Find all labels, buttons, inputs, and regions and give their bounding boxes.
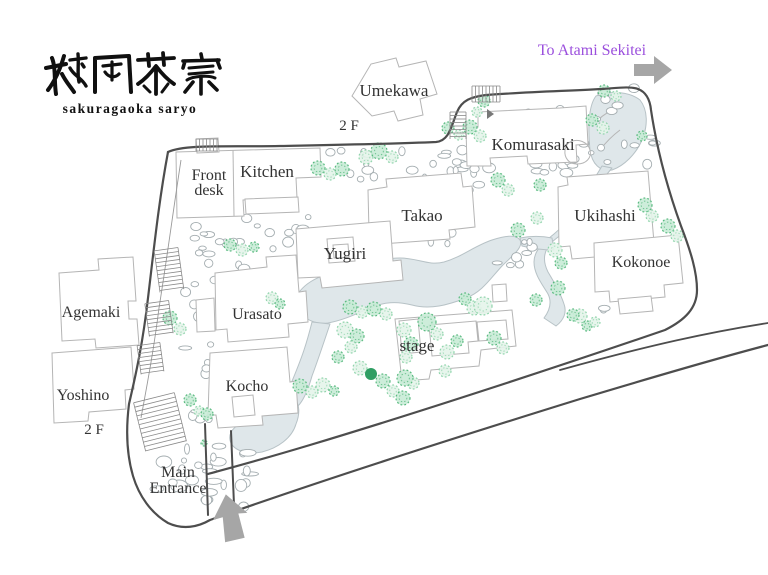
tree-symbol	[174, 323, 186, 335]
stone-symbol	[205, 259, 213, 267]
label-yoshino: Yoshino	[57, 387, 110, 404]
stone-symbol	[215, 239, 224, 245]
stone-symbol	[473, 181, 485, 188]
stone-symbol	[630, 143, 639, 148]
label-umekawa: Umekawa	[360, 81, 429, 100]
tree-symbol	[638, 198, 652, 212]
label-komurasaki: Komurasaki	[491, 135, 574, 154]
tree-symbol	[439, 365, 451, 377]
tree-symbol	[365, 368, 377, 380]
label-ukihashi: Ukihashi	[574, 206, 636, 225]
tree-symbol	[555, 257, 567, 269]
label-takao: Takao	[401, 206, 442, 225]
atami-arrow-icon	[634, 56, 672, 84]
stone-symbol	[208, 342, 214, 347]
urasato-wing	[196, 298, 215, 332]
stone-symbol	[203, 251, 215, 257]
tree-symbol	[611, 91, 621, 101]
kokonoe-tail	[618, 296, 653, 314]
stone-symbol	[512, 253, 522, 262]
tree-symbol	[497, 342, 509, 354]
tree-symbol	[356, 306, 368, 318]
tree-symbol	[353, 361, 367, 375]
stone-symbol	[195, 250, 202, 256]
site-map: 桜岡茶寮 sakuragaoka saryo Umekawa2 FKomuras…	[0, 0, 768, 575]
tree-symbol	[418, 313, 436, 331]
tree-symbol	[367, 302, 381, 316]
stone-symbol	[430, 160, 437, 167]
stone-symbol	[438, 153, 451, 158]
building-agemaki	[59, 257, 139, 348]
stone-symbol	[211, 453, 217, 461]
tree-symbol	[502, 184, 514, 196]
tree-symbol	[376, 374, 390, 388]
tree-symbol	[598, 85, 610, 97]
tree-symbol	[397, 370, 413, 386]
stone-symbol	[190, 235, 199, 241]
stone-symbol	[243, 466, 250, 476]
building-yoshino	[52, 347, 134, 423]
stone-symbol	[598, 144, 605, 151]
label-main-entrance: MainEntrance	[150, 464, 207, 497]
stone-symbol	[200, 232, 208, 236]
stone-symbol	[492, 261, 502, 265]
stone-symbol	[326, 149, 335, 157]
tree-symbol	[567, 309, 579, 321]
tree-symbol	[236, 244, 248, 256]
tree-symbol	[201, 408, 213, 420]
tree-symbol	[329, 386, 339, 396]
tree-symbol	[551, 281, 565, 295]
tree-symbol	[371, 143, 387, 159]
tree-symbol	[335, 162, 349, 176]
tree-symbol	[224, 239, 236, 251]
stone-symbol	[357, 176, 364, 182]
stone-symbol	[240, 449, 256, 456]
tree-symbol	[474, 297, 492, 315]
label-urasato: Urasato	[232, 306, 282, 323]
label-umekawa-floor: 2 F	[339, 118, 359, 134]
tree-symbol	[332, 351, 344, 363]
site-map-page: 桜岡茶寮 sakuragaoka saryo Umekawa2 FKomuras…	[0, 0, 768, 575]
tree-symbol	[597, 122, 609, 134]
label-kocho: Kocho	[226, 378, 269, 395]
tree-symbol	[671, 230, 683, 242]
tree-symbol	[472, 107, 482, 117]
tree-symbol	[396, 391, 410, 405]
logo-romaji: sakuragaoka saryo	[63, 101, 198, 116]
stone-symbol	[337, 147, 345, 154]
tree-symbol	[474, 130, 486, 142]
tree-symbol	[324, 168, 336, 180]
stone-symbol	[235, 479, 246, 491]
stone-symbol	[406, 166, 418, 174]
tree-symbol	[345, 341, 357, 353]
stairs-symbol	[154, 248, 184, 293]
building-urasato	[215, 255, 308, 342]
stone-symbol	[649, 141, 656, 145]
stone-symbol	[522, 240, 527, 245]
stone-symbol	[588, 151, 594, 155]
stone-symbol	[362, 166, 374, 174]
stone-symbol	[399, 147, 405, 156]
stone-symbol	[212, 443, 226, 449]
stone-symbol	[445, 240, 450, 246]
tree-symbol	[306, 386, 318, 398]
stone-symbol	[195, 462, 203, 469]
stone-symbol	[527, 238, 532, 245]
stone-symbol	[507, 263, 515, 268]
label-stage: stage	[400, 336, 435, 355]
entrance-arrow-icon	[209, 491, 252, 543]
tree-symbol	[249, 242, 259, 252]
tree-symbol	[380, 308, 392, 320]
tree-symbol	[531, 212, 543, 224]
tree-symbol	[548, 243, 562, 257]
tree-symbol	[511, 223, 525, 237]
tree-symbol	[451, 335, 463, 347]
stone-symbol	[612, 102, 623, 109]
tree-symbol	[491, 173, 505, 187]
kitchen-annex	[245, 197, 299, 214]
label-kokonoe: Kokonoe	[612, 254, 671, 271]
stone-symbol	[185, 444, 190, 454]
stone-symbol	[191, 282, 199, 287]
tree-symbol	[440, 345, 454, 359]
label-yoshino-floor: 2 F	[84, 422, 104, 438]
stone-symbol	[285, 229, 294, 236]
stairs-symbol	[134, 393, 187, 452]
stone-symbol	[265, 229, 275, 237]
tree-symbol	[534, 179, 546, 191]
label-yugiri: Yugiri	[324, 244, 367, 263]
tree-symbol	[316, 378, 330, 392]
stone-symbol	[283, 237, 294, 247]
logo: 桜岡茶寮 sakuragaoka saryo	[46, 53, 220, 116]
tree-symbol	[454, 130, 464, 140]
tree-symbol	[586, 114, 598, 126]
stone-symbol	[254, 224, 260, 228]
tree-symbol	[311, 161, 325, 175]
label-kitchen: Kitchen	[240, 162, 294, 181]
tree-symbol	[637, 131, 647, 141]
stone-symbol	[540, 170, 549, 176]
tree-symbol	[386, 151, 398, 163]
tree-symbol	[293, 379, 307, 393]
tree-symbol	[590, 317, 600, 327]
stone-symbol	[643, 159, 652, 169]
stone-symbol	[191, 222, 202, 230]
tree-symbol	[646, 210, 658, 222]
stone-symbol	[305, 215, 311, 220]
stone-symbol	[560, 168, 573, 177]
tree-symbol	[397, 323, 411, 337]
stone-symbol	[604, 160, 611, 165]
stone-symbol	[179, 346, 192, 350]
tree-symbol	[530, 294, 542, 306]
stone-symbol	[181, 288, 191, 297]
tree-symbol	[184, 394, 196, 406]
stone-symbol	[452, 159, 461, 166]
label-to-atami: To Atami Sekitei	[538, 42, 647, 59]
label-front-desk: Frontdesk	[192, 167, 227, 199]
stone-symbol	[599, 305, 611, 311]
tree-symbol	[343, 300, 357, 314]
label-agemaki: Agemaki	[62, 304, 121, 321]
stone-symbol	[621, 140, 627, 149]
stone-symbol	[181, 458, 186, 463]
stone-symbol	[270, 246, 276, 252]
